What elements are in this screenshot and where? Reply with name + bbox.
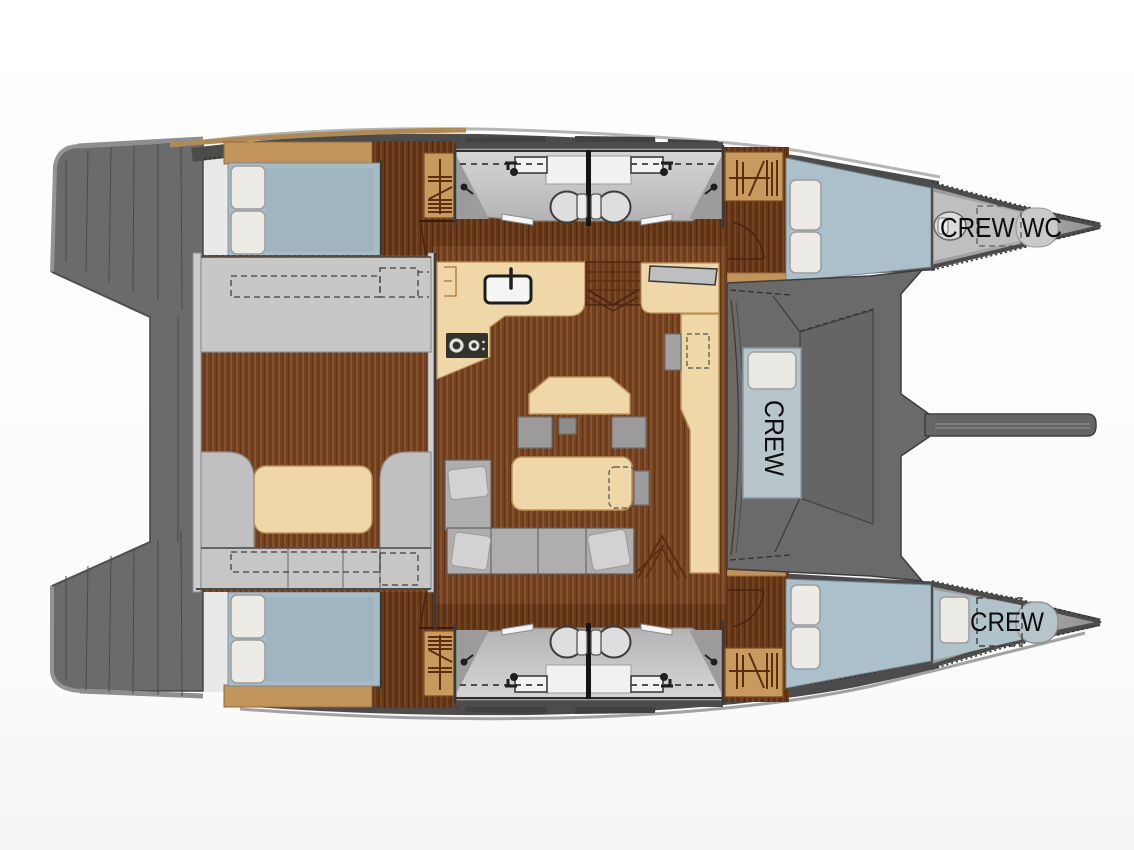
svg-text:CREW: CREW (759, 400, 789, 476)
svg-text:CREW: CREW (970, 607, 1044, 637)
svg-text:CREW WC: CREW WC (940, 212, 1062, 243)
